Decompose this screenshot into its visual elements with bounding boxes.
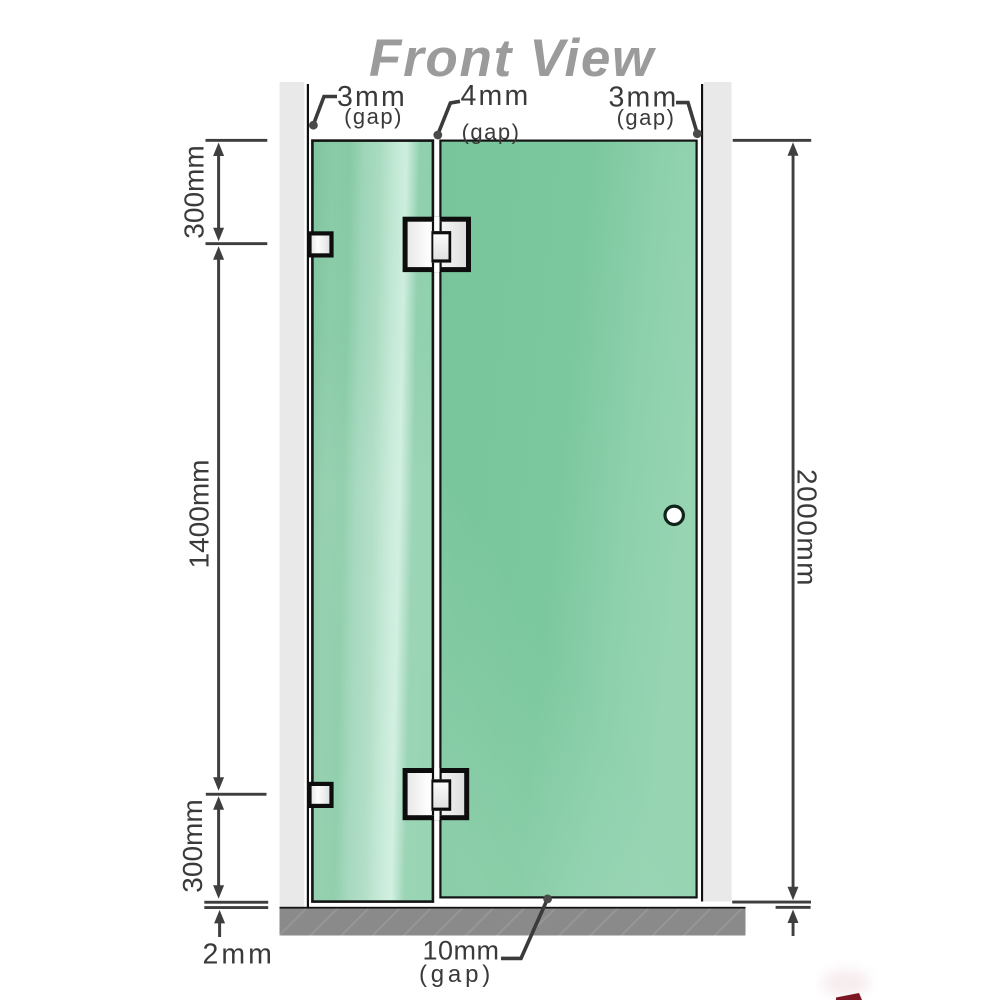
svg-text:(gap): (gap) — [344, 104, 403, 129]
svg-text:(gap): (gap) — [419, 961, 494, 988]
svg-text:1400mm: 1400mm — [184, 460, 215, 569]
svg-text:(gap): (gap) — [462, 120, 521, 145]
svg-text:300mm: 300mm — [179, 145, 210, 238]
svg-text:(gap): (gap) — [617, 105, 676, 130]
svg-text:2mm: 2mm — [203, 939, 275, 971]
svg-text:300mm: 300mm — [177, 799, 208, 892]
svg-text:2000mm: 2000mm — [792, 469, 823, 587]
svg-text:4mm: 4mm — [461, 80, 531, 112]
